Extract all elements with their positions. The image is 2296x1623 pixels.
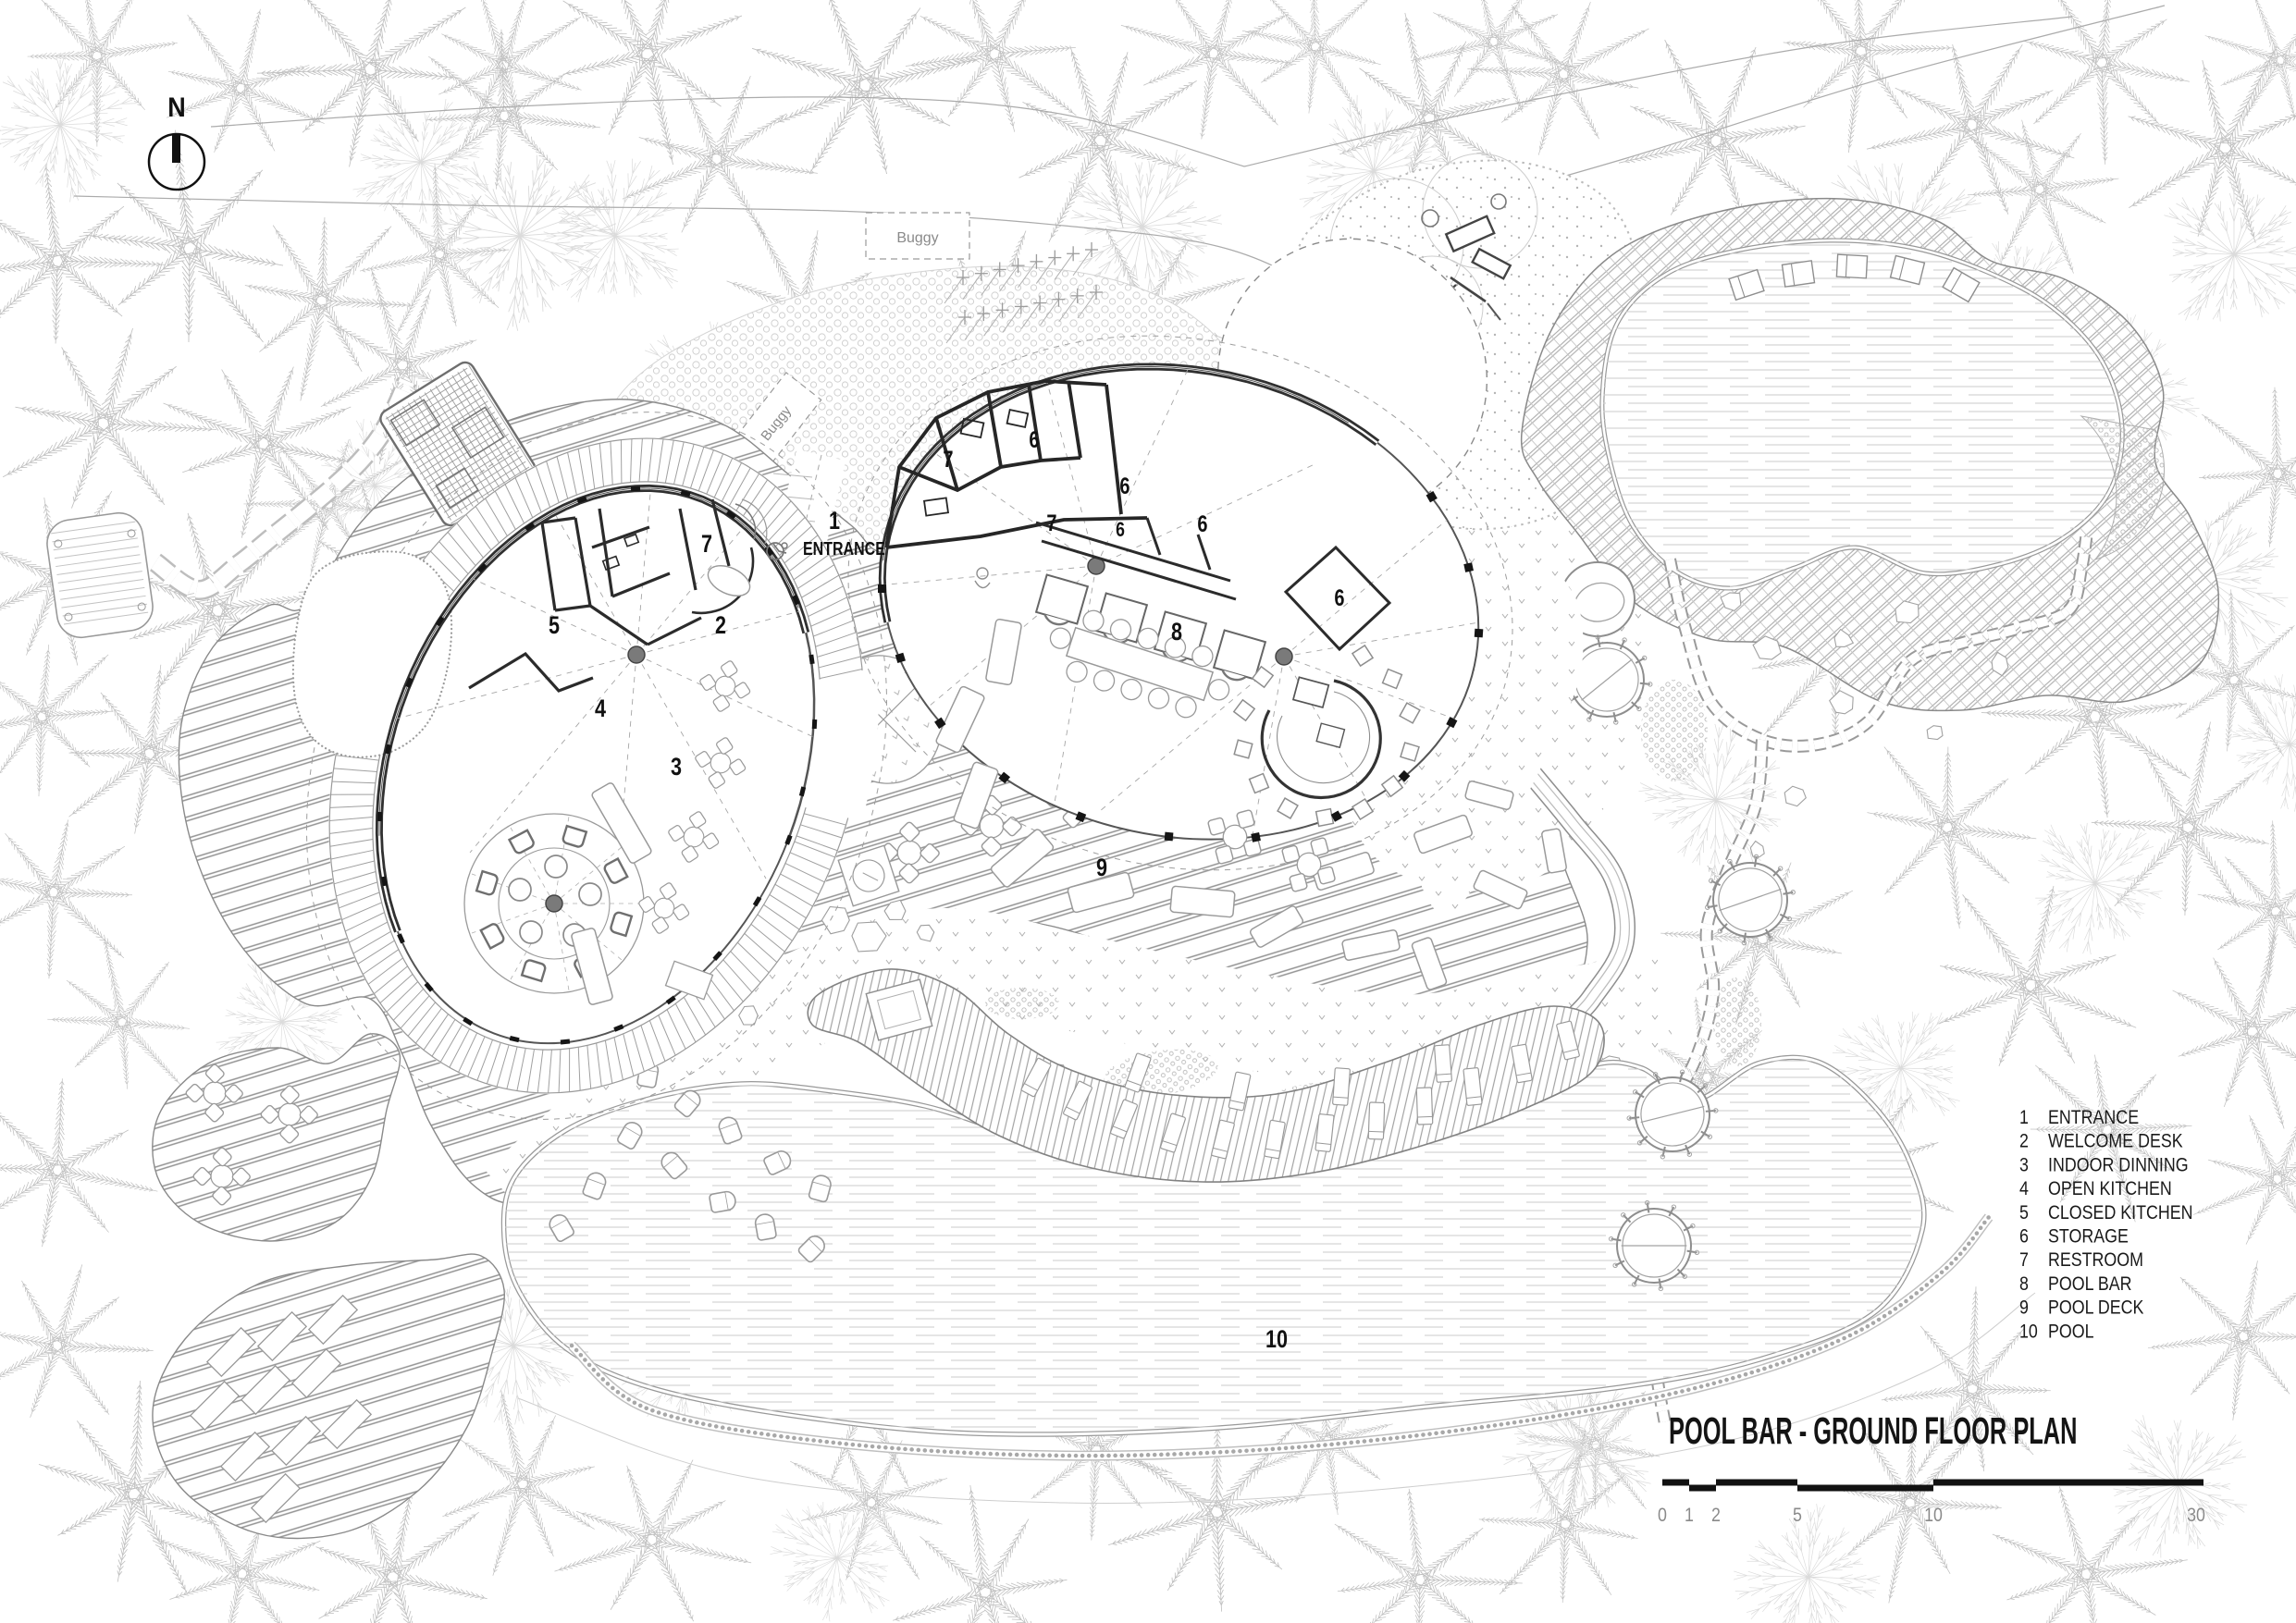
svg-text:4: 4: [2019, 1178, 2029, 1200]
svg-text:7: 7: [1046, 510, 1056, 536]
svg-text:5: 5: [2019, 1201, 2029, 1223]
svg-text:7: 7: [2019, 1249, 2029, 1272]
svg-text:9: 9: [2019, 1297, 2029, 1319]
svg-text:POOL BAR: POOL BAR: [2048, 1273, 2132, 1296]
svg-text:2: 2: [2019, 1130, 2029, 1152]
svg-text:3: 3: [2019, 1154, 2029, 1176]
svg-text:5: 5: [1793, 1505, 1802, 1527]
svg-text:6: 6: [1116, 519, 1125, 541]
svg-text:2: 2: [1711, 1505, 1721, 1527]
svg-text:1: 1: [1685, 1505, 1694, 1527]
svg-text:INDOOR DINNING: INDOOR DINNING: [2048, 1154, 2189, 1176]
svg-text:N: N: [167, 92, 185, 124]
svg-text:OPEN KITCHEN: OPEN KITCHEN: [2048, 1178, 2172, 1200]
svg-text:STORAGE: STORAGE: [2048, 1225, 2129, 1248]
svg-text:POOL BAR - GROUND FLOOR PLAN: POOL BAR - GROUND FLOOR PLAN: [1669, 1410, 2078, 1453]
svg-text:POOL: POOL: [2048, 1321, 2094, 1343]
svg-text:RESTROOM: RESTROOM: [2048, 1249, 2143, 1272]
svg-text:10: 10: [1265, 1326, 1288, 1354]
svg-text:30: 30: [2187, 1505, 2205, 1527]
svg-text:0: 0: [1658, 1505, 1667, 1527]
svg-text:10: 10: [1924, 1505, 1943, 1527]
svg-text:5: 5: [549, 612, 560, 640]
svg-text:Buggy: Buggy: [896, 230, 938, 246]
svg-text:6: 6: [1197, 511, 1207, 537]
svg-text:6: 6: [1119, 473, 1129, 499]
svg-text:POOL DECK: POOL DECK: [2048, 1297, 2143, 1319]
svg-text:1: 1: [2019, 1107, 2029, 1129]
svg-text:7: 7: [943, 447, 953, 473]
svg-text:ENTRANCE: ENTRANCE: [803, 538, 885, 559]
svg-text:2: 2: [715, 612, 726, 640]
svg-text:3: 3: [671, 754, 682, 781]
svg-text:6: 6: [1334, 585, 1344, 611]
svg-text:8: 8: [1171, 619, 1182, 646]
svg-text:1: 1: [829, 508, 840, 535]
svg-text:10: 10: [2019, 1321, 2038, 1343]
svg-text:ENTRANCE: ENTRANCE: [2048, 1107, 2139, 1129]
svg-text:9: 9: [1096, 855, 1107, 882]
svg-text:6: 6: [2019, 1225, 2029, 1248]
svg-text:WELCOME DESK: WELCOME DESK: [2048, 1130, 2183, 1152]
svg-text:4: 4: [595, 695, 606, 723]
svg-text:7: 7: [701, 531, 712, 559]
svg-text:6: 6: [1029, 427, 1039, 453]
svg-text:8: 8: [2019, 1273, 2029, 1296]
svg-text:CLOSED KITCHEN: CLOSED KITCHEN: [2048, 1201, 2193, 1223]
